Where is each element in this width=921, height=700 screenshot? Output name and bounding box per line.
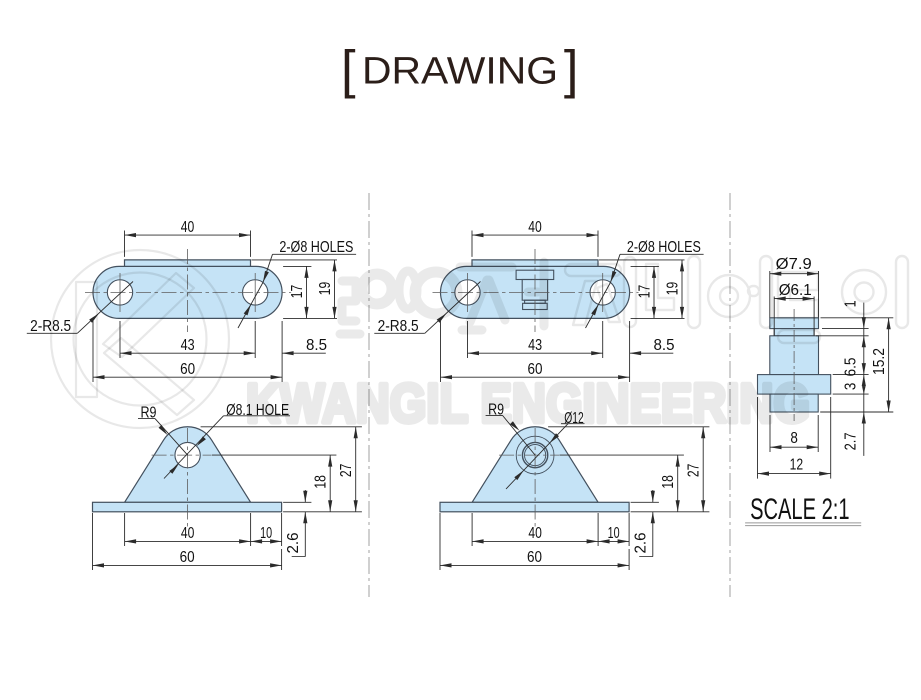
svg-text:15.2: 15.2 [871, 348, 888, 375]
svg-text:[: [ [341, 41, 356, 100]
svg-text:18: 18 [660, 475, 677, 489]
svg-text:DRAWING: DRAWING [362, 50, 558, 92]
svg-text:19: 19 [317, 282, 334, 296]
svg-text:12: 12 [790, 457, 804, 474]
svg-text:40: 40 [528, 525, 542, 542]
svg-text:2.6: 2.6 [285, 533, 302, 554]
svg-text:R9: R9 [141, 405, 157, 422]
svg-text:27: 27 [338, 464, 355, 478]
svg-text:43: 43 [181, 337, 195, 354]
svg-text:17: 17 [289, 285, 306, 299]
svg-text:60: 60 [527, 549, 542, 566]
svg-text:43: 43 [528, 337, 542, 354]
svg-text:2-Ø8 HOLES: 2-Ø8 HOLES [279, 239, 353, 256]
svg-text:40: 40 [181, 525, 195, 542]
svg-text:SCALE 2:1: SCALE 2:1 [750, 493, 849, 526]
svg-text:2-R8.5: 2-R8.5 [378, 318, 419, 335]
svg-text:40: 40 [181, 219, 195, 236]
svg-text:18: 18 [313, 475, 330, 489]
svg-text:2.7: 2.7 [843, 432, 860, 450]
svg-text:10: 10 [608, 525, 620, 542]
svg-text:40: 40 [528, 219, 542, 236]
svg-text:8.5: 8.5 [654, 337, 675, 354]
svg-text:60: 60 [180, 549, 195, 566]
svg-text:KWANGIL ENGINEERING: KWANGIL ENGINEERING [246, 372, 810, 434]
svg-text:]: ] [564, 41, 579, 100]
svg-text:2-Ø8 HOLES: 2-Ø8 HOLES [627, 239, 701, 256]
svg-text:27: 27 [686, 464, 703, 478]
svg-text:8.5: 8.5 [306, 337, 327, 354]
svg-text:60: 60 [180, 361, 195, 378]
svg-text:6.5: 6.5 [843, 358, 860, 377]
svg-text:2.6: 2.6 [632, 533, 649, 554]
svg-text:10: 10 [260, 525, 272, 542]
svg-text:Ø7.9: Ø7.9 [776, 256, 812, 273]
svg-text:19: 19 [665, 282, 682, 296]
svg-text:3: 3 [843, 383, 860, 391]
